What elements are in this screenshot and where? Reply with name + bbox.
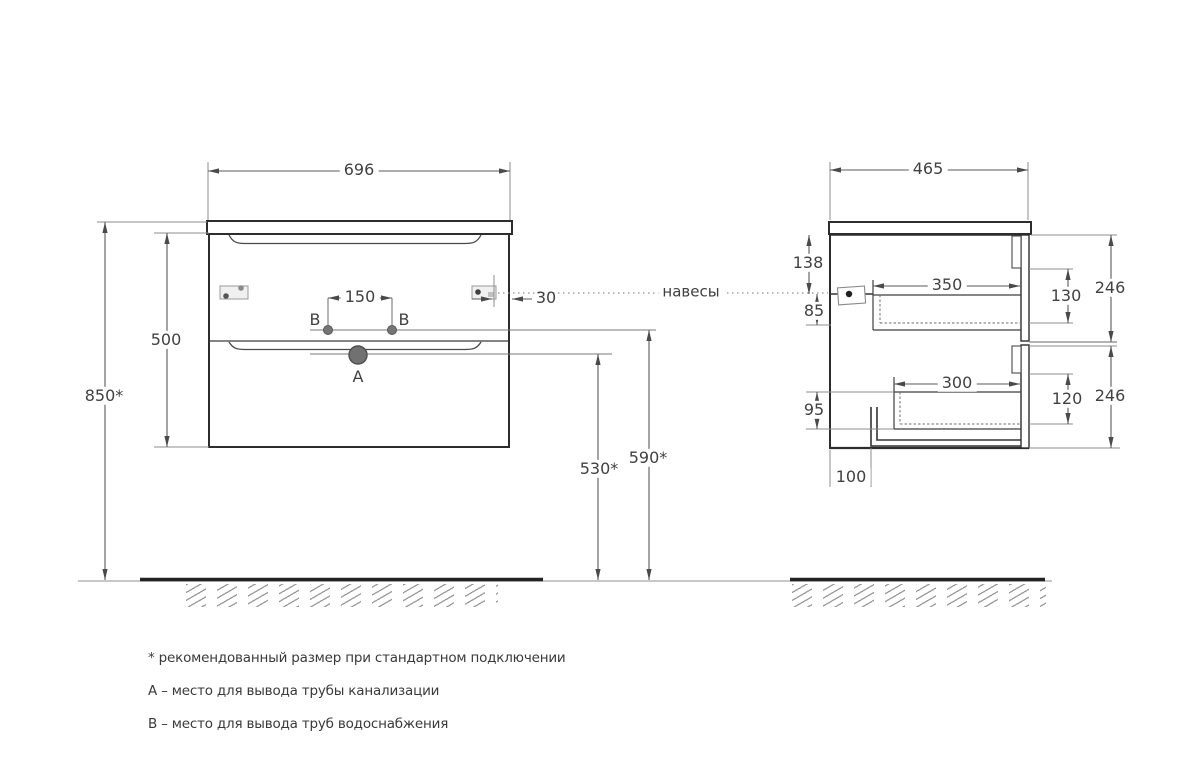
hanger-bracket-screw [846, 291, 852, 297]
water-outlet-b-right [388, 326, 397, 335]
drawer2-rail [1012, 346, 1021, 373]
dim-front-top-height: 246 [1091, 279, 1130, 297]
footnote-b: B – место для вывода труб водоснабжения [148, 708, 566, 741]
footnotes: * рекомендованный размер при стандартном… [148, 642, 566, 741]
side-view [806, 162, 1120, 487]
countertop-side [829, 222, 1031, 234]
hangers-callout-label: навесы [658, 283, 723, 300]
hanger-left-screw [238, 285, 244, 291]
hanger-right-screw [475, 289, 481, 295]
dim-drawer2-depth: 300 [938, 374, 977, 392]
floor-hatch-left [186, 584, 498, 607]
technical-drawing-page: 696 500 850* 150 30 B B A 530* 590* наве… [0, 0, 1200, 771]
dim-front-bottom-height: 246 [1091, 387, 1130, 405]
drawer1-front-panel [1021, 235, 1029, 341]
front-view [97, 162, 828, 580]
floor-hatch-right [792, 584, 1046, 607]
dim-hanger-to-box: 85 [800, 302, 828, 320]
dim-outlet-spacing: 150 [341, 288, 380, 306]
hanger-left-screw [223, 293, 229, 299]
label-a: A [352, 368, 365, 386]
dim-drawer1-box-height: 130 [1047, 287, 1086, 305]
countertop-front [207, 221, 512, 234]
dim-hanger-inset: 30 [535, 289, 557, 307]
floor [78, 580, 1052, 582]
dim-cabinet-height: 500 [147, 331, 186, 349]
dim-drain-height: 530* [576, 460, 623, 478]
dim-drawer1-depth: 350 [928, 276, 967, 294]
label-b-left: B [309, 311, 322, 329]
footnote-a: A – место для вывода трубы канализации [148, 675, 566, 708]
dim-hanger-from-top: 138 [789, 254, 828, 272]
dim-depth: 465 [909, 160, 948, 178]
drawer1-rail [1012, 236, 1021, 268]
hanger-right-clip [488, 292, 494, 297]
dim-drawer2-box-height: 120 [1048, 390, 1087, 408]
footnote-asterisk: * рекомендованный размер при стандартном… [148, 642, 566, 675]
dim-water-height: 590* [625, 449, 672, 467]
label-b-right: B [398, 311, 411, 329]
drain-outlet-a [349, 346, 367, 364]
dim-bottom-clearance: 95 [800, 401, 828, 419]
water-outlet-b-left [324, 326, 333, 335]
dim-mount-height: 850* [81, 387, 128, 405]
dim-front-width: 696 [340, 161, 379, 179]
dim-pipe-offset: 100 [832, 468, 871, 486]
drawer2-front-panel [1021, 345, 1029, 448]
